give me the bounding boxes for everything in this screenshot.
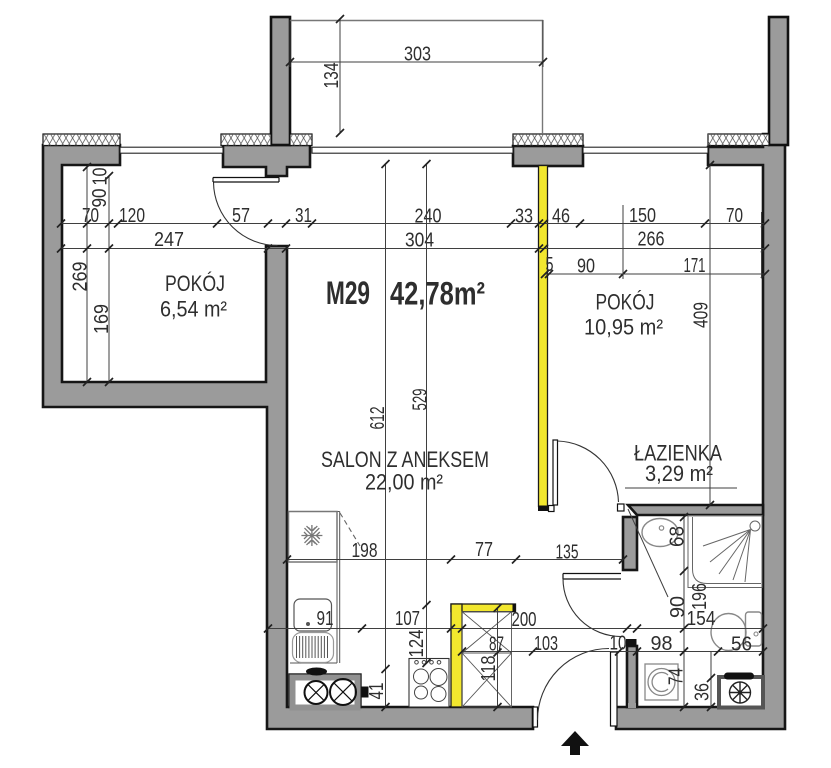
svg-text:42,78m²: 42,78m² (390, 276, 485, 312)
svg-text:171: 171 (684, 255, 706, 277)
svg-text:90: 90 (667, 596, 689, 618)
svg-text:135: 135 (556, 542, 579, 564)
svg-text:77: 77 (475, 539, 493, 561)
svg-text:3,29 m²: 3,29 m² (645, 461, 713, 486)
svg-text:200: 200 (512, 609, 537, 631)
svg-text:409: 409 (691, 302, 713, 328)
svg-text:98: 98 (651, 633, 673, 655)
svg-text:POKÓJ: POKÓJ (596, 290, 655, 315)
svg-text:169: 169 (91, 304, 113, 334)
svg-text:SALON Z ANEKSEM: SALON Z ANEKSEM (321, 447, 489, 472)
svg-text:46: 46 (552, 206, 570, 228)
svg-text:90: 90 (89, 189, 111, 208)
svg-text:150: 150 (629, 205, 656, 227)
svg-text:70: 70 (726, 205, 743, 227)
svg-text:107: 107 (395, 608, 420, 630)
svg-text:22,00 m²: 22,00 m² (365, 470, 443, 495)
svg-text:269: 269 (70, 262, 92, 292)
svg-text:266: 266 (638, 229, 665, 251)
svg-text:33: 33 (515, 206, 533, 228)
svg-text:41: 41 (366, 683, 388, 700)
svg-text:36: 36 (692, 683, 714, 701)
svg-text:247: 247 (154, 229, 184, 251)
svg-text:10: 10 (90, 168, 112, 186)
svg-text:90: 90 (577, 256, 595, 278)
svg-text:91: 91 (317, 608, 334, 630)
svg-text:612: 612 (367, 407, 389, 430)
svg-text:240: 240 (415, 206, 442, 228)
svg-text:74: 74 (666, 668, 688, 685)
svg-text:196: 196 (689, 583, 711, 610)
svg-text:10,95 m²: 10,95 m² (584, 315, 663, 340)
svg-text:6,54 m²: 6,54 m² (160, 297, 227, 322)
svg-text:68: 68 (667, 526, 689, 547)
svg-text:198: 198 (352, 540, 378, 562)
svg-text:10: 10 (610, 633, 627, 655)
svg-text:87: 87 (489, 634, 504, 656)
svg-text:118: 118 (478, 656, 500, 682)
svg-text:31: 31 (295, 205, 312, 227)
svg-text:M29: M29 (326, 275, 370, 311)
svg-text:134: 134 (321, 63, 343, 89)
svg-text:57: 57 (232, 205, 250, 227)
svg-text:POKÓJ: POKÓJ (165, 271, 225, 296)
svg-text:124: 124 (406, 630, 428, 658)
svg-text:103: 103 (534, 633, 558, 655)
svg-text:154: 154 (687, 608, 716, 630)
svg-text:303: 303 (404, 44, 431, 66)
svg-text:5: 5 (546, 254, 554, 276)
svg-text:529: 529 (410, 389, 432, 411)
svg-text:120: 120 (119, 205, 145, 227)
svg-text:304: 304 (405, 230, 434, 252)
svg-text:56: 56 (731, 634, 752, 656)
